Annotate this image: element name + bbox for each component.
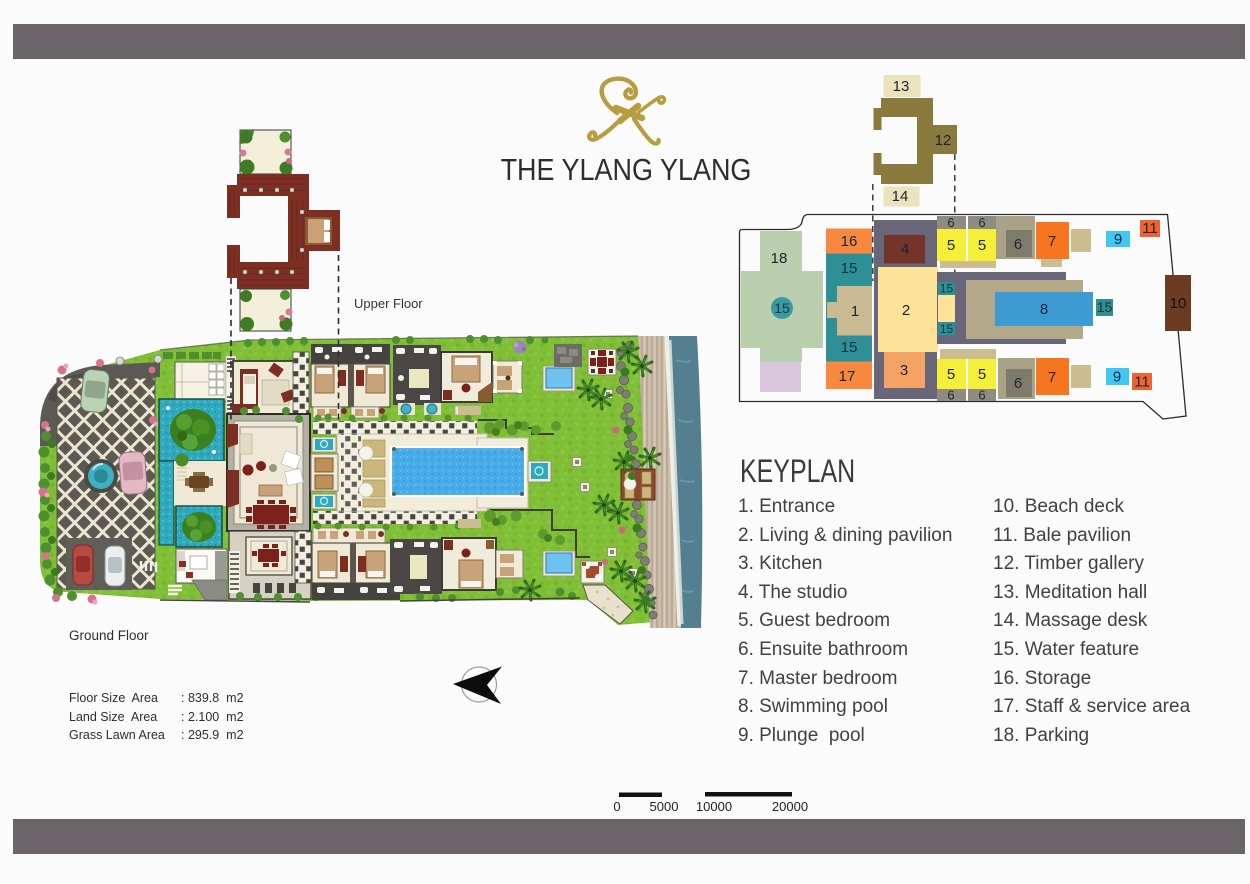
svg-text:10: 10	[1170, 295, 1187, 312]
svg-text:20000: 20000	[772, 799, 808, 814]
svg-text:6: 6	[947, 388, 954, 403]
svg-text:15: 15	[841, 260, 858, 277]
svg-text:3: 3	[900, 362, 908, 379]
svg-text:6: 6	[947, 215, 954, 230]
svg-text:0: 0	[613, 799, 620, 814]
svg-text:18: 18	[771, 250, 788, 267]
svg-text:11: 11	[1134, 374, 1150, 391]
svg-text:13: 13	[893, 78, 910, 95]
svg-text:16: 16	[841, 233, 858, 250]
svg-text:9: 9	[1113, 369, 1121, 386]
svg-text:10000: 10000	[696, 799, 732, 814]
svg-text:8: 8	[1040, 301, 1048, 318]
svg-text:5: 5	[947, 237, 955, 254]
svg-text:5000: 5000	[650, 799, 679, 814]
svg-text:2: 2	[902, 302, 910, 319]
svg-text:1: 1	[851, 303, 859, 320]
svg-text:5: 5	[978, 237, 986, 254]
svg-text:7: 7	[1048, 369, 1056, 386]
svg-text:9: 9	[1114, 231, 1122, 248]
svg-text:12: 12	[935, 132, 952, 149]
svg-text:6: 6	[1014, 236, 1022, 253]
svg-text:11: 11	[1142, 220, 1158, 237]
svg-text:15: 15	[1097, 299, 1113, 315]
svg-text:15: 15	[774, 300, 790, 316]
svg-text:5: 5	[978, 366, 986, 383]
svg-text:15: 15	[940, 322, 954, 336]
svg-text:7: 7	[1048, 233, 1056, 250]
svg-text:15: 15	[841, 339, 858, 356]
svg-text:5: 5	[947, 366, 955, 383]
svg-text:14: 14	[892, 188, 909, 205]
svg-text:4: 4	[901, 241, 909, 258]
svg-text:6: 6	[978, 215, 985, 230]
svg-text:6: 6	[1014, 375, 1022, 392]
svg-text:17: 17	[839, 368, 856, 385]
svg-text:6: 6	[978, 388, 985, 403]
svg-text:15: 15	[940, 282, 954, 296]
